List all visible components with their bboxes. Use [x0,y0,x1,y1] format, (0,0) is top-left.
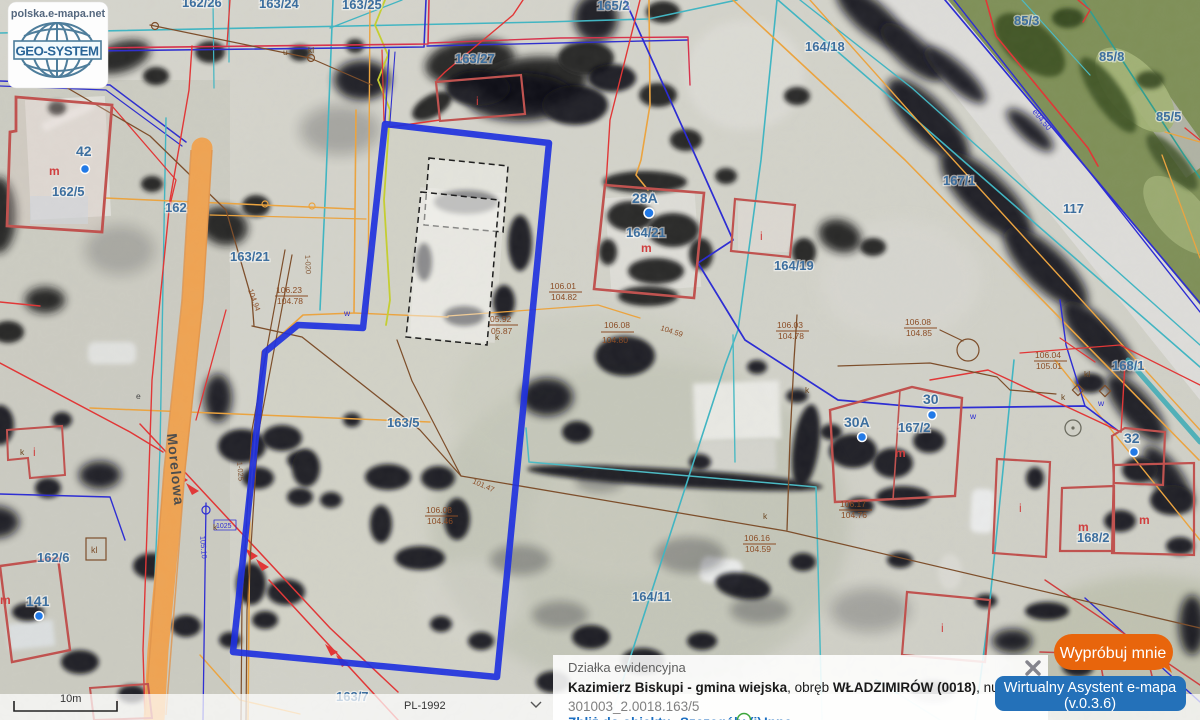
svg-text:GEO-SYSTEM: GEO-SYSTEM [16,44,99,59]
svg-text:Inne: Inne [764,715,792,720]
svg-text:Kazimierz Biskupi - gmina wiej: Kazimierz Biskupi - gmina wiejska, obręb… [568,680,1040,695]
svg-text:Zbliż do obiektu: Zbliż do obiektu [568,715,671,720]
svg-text:10m: 10m [60,693,81,705]
svg-text:(v.0.3.6): (v.0.3.6) [1064,696,1116,712]
svg-text:Wirtualny Asystent e-mapa: Wirtualny Asystent e-mapa [1004,680,1177,696]
svg-text:Działka ewidencyjna: Działka ewidencyjna [568,660,687,675]
svg-text:polska.e-mapa.net: polska.e-mapa.net [11,8,106,20]
svg-text:PL-1992: PL-1992 [404,700,446,712]
svg-text:Wypróbuj mnie: Wypróbuj mnie [1060,645,1167,662]
svg-text:301003_2.0018.163/5: 301003_2.0018.163/5 [568,699,699,714]
